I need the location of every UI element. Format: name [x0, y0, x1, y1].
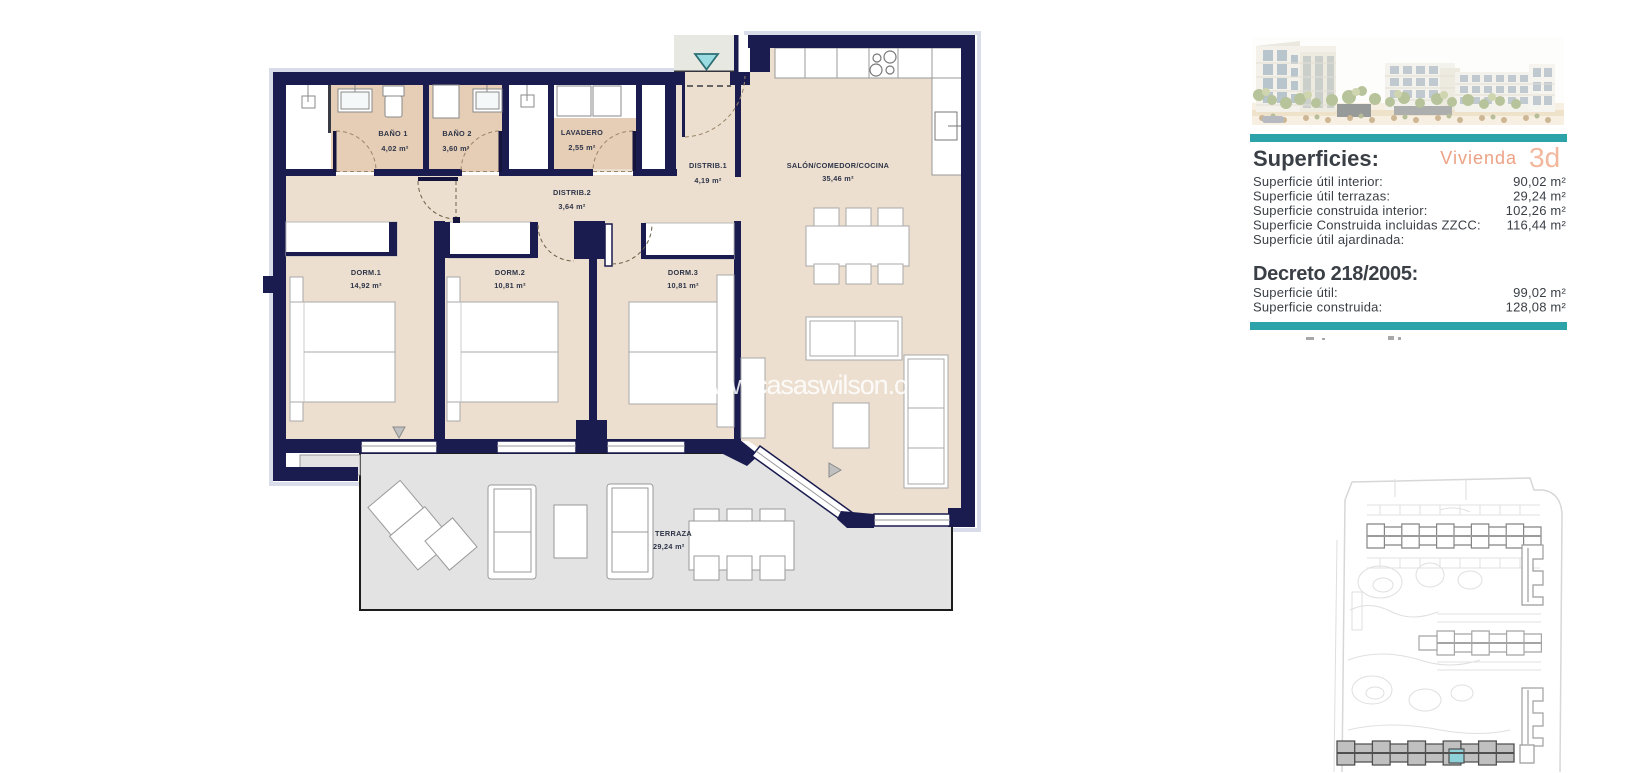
svg-text:10,81 m²: 10,81 m² [667, 281, 699, 290]
svg-text:14,92 m²: 14,92 m² [350, 281, 382, 290]
svg-text:3d: 3d [1529, 142, 1560, 173]
svg-text:102,26 m²: 102,26 m² [1506, 203, 1567, 218]
svg-text:Decreto 218/2005:: Decreto 218/2005: [1253, 263, 1418, 285]
svg-text:4,19 m²: 4,19 m² [694, 176, 722, 185]
svg-text:35,46 m²: 35,46 m² [822, 174, 854, 183]
svg-text:Superficies:: Superficies: [1253, 146, 1379, 171]
svg-text:99,02 m²: 99,02 m² [1513, 285, 1566, 300]
svg-text:BAÑO 1: BAÑO 1 [378, 129, 407, 138]
svg-text:DISTRIB.1: DISTRIB.1 [689, 161, 727, 170]
svg-text:10,81 m²: 10,81 m² [494, 281, 526, 290]
svg-text:29,24 m²: 29,24 m² [653, 542, 685, 551]
svg-text:TERRAZA: TERRAZA [655, 529, 692, 538]
svg-text:DISTRIB.2: DISTRIB.2 [553, 188, 591, 197]
svg-text:BAÑO 2: BAÑO 2 [442, 129, 471, 138]
svg-text:3,64 m²: 3,64 m² [558, 202, 586, 211]
svg-text:2,55 m²: 2,55 m² [568, 143, 596, 152]
svg-text:128,08 m²: 128,08 m² [1506, 300, 1567, 315]
svg-text:Superficie útil terrazas:: Superficie útil terrazas: [1253, 189, 1390, 204]
svg-text:DORM.1: DORM.1 [351, 268, 381, 277]
svg-text:Superficie útil ajardinada:: Superficie útil ajardinada: [1253, 232, 1404, 247]
svg-text:Superficie útil interior:: Superficie útil interior: [1253, 174, 1383, 189]
svg-text:Superficie útil:: Superficie útil: [1253, 285, 1338, 300]
svg-text:DORM.2: DORM.2 [495, 268, 525, 277]
svg-text:90,02 m²: 90,02 m² [1513, 174, 1566, 189]
svg-text:116,44 m²: 116,44 m² [1507, 218, 1567, 233]
svg-text:Superficie construida interior: Superficie construida interior: [1253, 203, 1428, 218]
svg-text:Vivienda: Vivienda [1440, 148, 1517, 168]
svg-text:DORM.3: DORM.3 [668, 268, 698, 277]
svg-text:LAVADERO: LAVADERO [561, 128, 603, 137]
svg-text:Superficie Construida incluida: Superficie Construida incluidas ZZCC: [1253, 218, 1481, 233]
svg-text:3,60 m²: 3,60 m² [442, 144, 470, 153]
svg-text:Superficie construida:: Superficie construida: [1253, 300, 1382, 315]
svg-text:www.casaswilson.c: www.casaswilson.c [693, 370, 907, 400]
svg-text:SALÓN/COMEDOR/COCINA: SALÓN/COMEDOR/COCINA [787, 161, 890, 170]
svg-text:29,24 m²: 29,24 m² [1513, 189, 1566, 204]
svg-text:4,02 m²: 4,02 m² [381, 144, 409, 153]
